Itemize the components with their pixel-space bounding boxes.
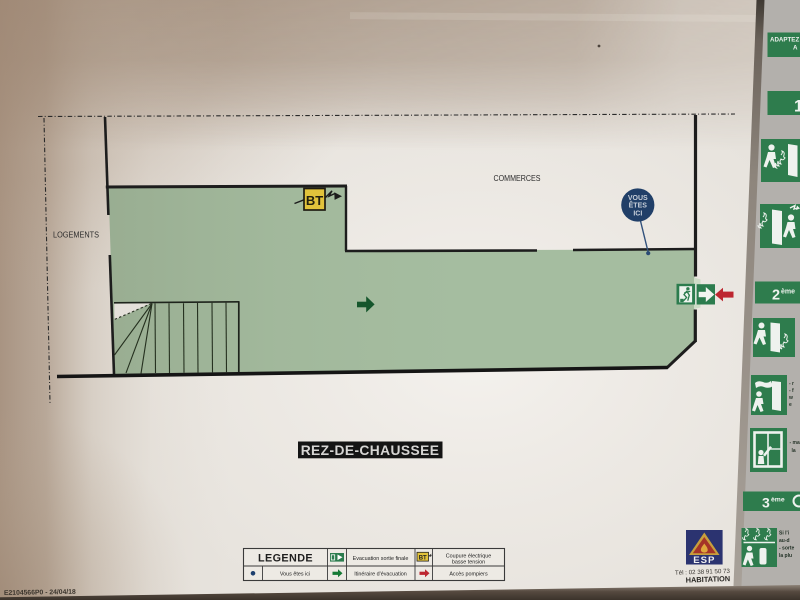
- svg-text:1: 1: [794, 98, 800, 116]
- svg-text:HABITATION: HABITATION: [686, 574, 731, 585]
- svg-text:Evacuation sortie finale: Evacuation sortie finale: [353, 556, 409, 562]
- svg-text:LOGEMENTS: LOGEMENTS: [53, 231, 99, 240]
- svg-text:E2104566P0 - 24/04/18: E2104566P0 - 24/04/18: [4, 589, 76, 597]
- svg-text:BT: BT: [419, 555, 427, 561]
- svg-text:LEGENDE: LEGENDE: [258, 552, 313, 564]
- svg-text:ICI: ICI: [633, 210, 642, 217]
- svg-text:Si l'i: Si l'i: [779, 531, 790, 537]
- svg-text:- sorte: - sorte: [779, 546, 795, 552]
- svg-text:Vous êtes ici: Vous êtes ici: [280, 572, 310, 578]
- svg-text:Accès pompiers: Accès pompiers: [449, 572, 488, 578]
- svg-text:e: e: [789, 402, 792, 408]
- svg-text:- f: - f: [789, 388, 794, 394]
- svg-text:au-d: au-d: [779, 538, 790, 544]
- svg-text:2: 2: [772, 288, 780, 304]
- svg-text:- r: - r: [789, 381, 794, 387]
- svg-text:VOUS: VOUS: [628, 195, 648, 202]
- svg-text:3: 3: [762, 495, 770, 511]
- svg-text:COMMERCES: COMMERCES: [494, 174, 541, 183]
- svg-text:ème: ème: [771, 497, 785, 504]
- svg-text:BT: BT: [306, 193, 323, 208]
- svg-text:ème: ème: [781, 289, 795, 296]
- svg-text:la plu: la plu: [779, 553, 792, 559]
- svg-text:Itinéraire d'évacuation: Itinéraire d'évacuation: [354, 572, 407, 578]
- svg-text:basse tension: basse tension: [452, 560, 485, 566]
- svg-text:REZ-DE-CHAUSSEE: REZ-DE-CHAUSSEE: [301, 443, 440, 458]
- svg-text:- ma: - ma: [790, 440, 800, 446]
- svg-text:ADAPTEZ: ADAPTEZ: [770, 37, 799, 44]
- svg-text:w: w: [788, 395, 793, 401]
- svg-text:ÊTES: ÊTES: [629, 201, 648, 210]
- svg-text:Coupure électrique: Coupure électrique: [446, 553, 492, 559]
- svg-text:la: la: [792, 448, 796, 454]
- svg-text:A: A: [793, 45, 798, 52]
- svg-text:ESP: ESP: [693, 555, 715, 566]
